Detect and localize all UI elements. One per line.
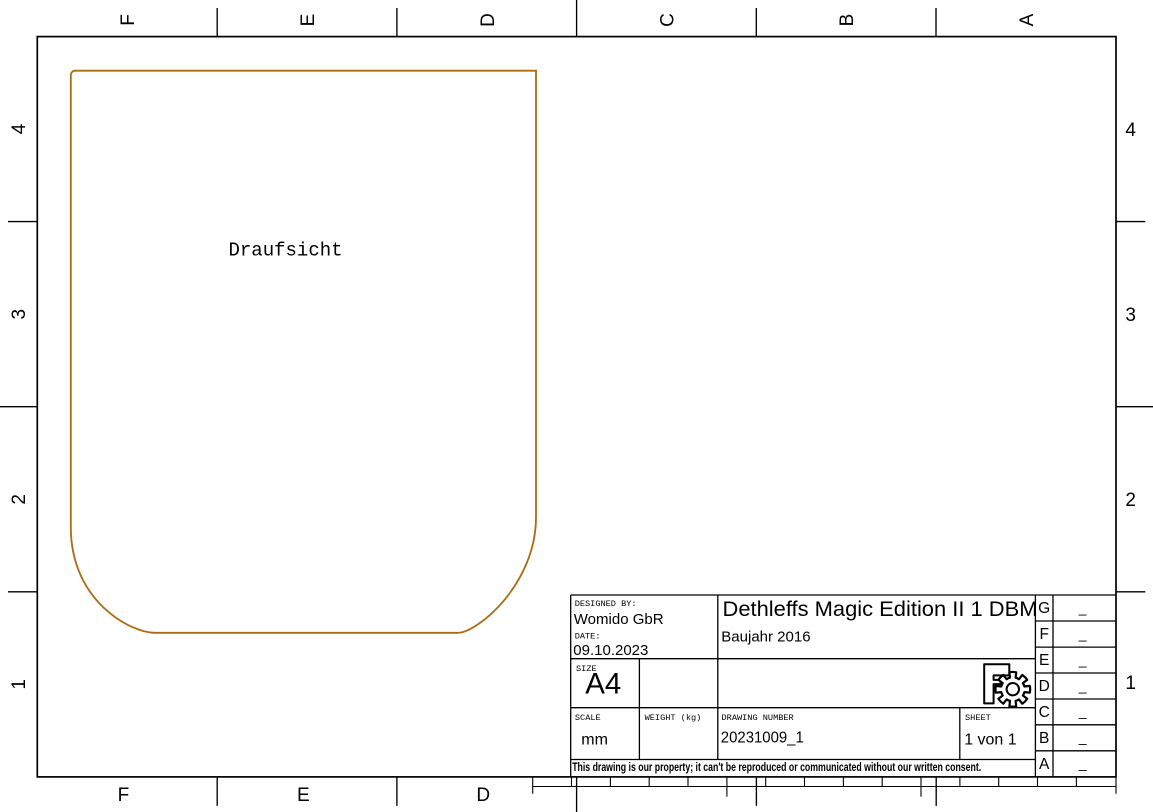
svg-text:_: _ [1078, 599, 1087, 615]
svg-text:B: B [837, 14, 858, 27]
svg-text:3: 3 [9, 309, 30, 320]
svg-text:D: D [476, 785, 490, 806]
svg-text:F: F [1039, 626, 1048, 643]
svg-text:3: 3 [1125, 305, 1136, 326]
svg-text:G: G [1038, 600, 1050, 617]
svg-text:1: 1 [1125, 673, 1136, 694]
svg-text:2: 2 [1125, 490, 1136, 511]
svg-text:SHEET: SHEET [965, 713, 991, 723]
svg-text:A: A [1039, 756, 1050, 773]
svg-text:DESIGNED BY:: DESIGNED BY: [575, 599, 637, 609]
svg-text:1 von 1: 1 von 1 [964, 732, 1017, 749]
svg-text:20231009_1: 20231009_1 [721, 730, 804, 747]
svg-text:SCALE: SCALE [575, 713, 601, 723]
svg-text:1: 1 [9, 679, 30, 690]
svg-text:2: 2 [9, 494, 30, 505]
svg-text:Draufsicht: Draufsicht [229, 240, 343, 262]
svg-text:This drawing is our property;: This drawing is our property; it can't b… [572, 760, 981, 774]
svg-text:D: D [478, 13, 499, 27]
svg-text:_: _ [1078, 703, 1087, 719]
svg-text:A4: A4 [585, 668, 621, 701]
svg-text:F: F [118, 785, 130, 806]
svg-text:09.10.2023: 09.10.2023 [573, 642, 648, 659]
svg-text:C: C [1039, 704, 1050, 721]
svg-text:mm: mm [581, 732, 608, 749]
svg-text:_: _ [1078, 729, 1087, 745]
svg-text:B: B [1039, 730, 1049, 747]
svg-text:Dethleffs Magic Edition II 1 D: Dethleffs Magic Edition II 1 DBM [723, 597, 1038, 621]
svg-text:4: 4 [1125, 120, 1136, 141]
svg-text:A: A [1017, 13, 1038, 26]
svg-text:E: E [297, 785, 310, 806]
svg-text:_: _ [1078, 677, 1087, 693]
svg-text:DRAWING NUMBER: DRAWING NUMBER [722, 713, 794, 723]
svg-text:D: D [1039, 678, 1050, 695]
svg-text:E: E [1039, 652, 1049, 669]
svg-text:Womido GbR: Womido GbR [574, 611, 664, 628]
svg-text:_: _ [1078, 625, 1087, 641]
svg-text:F: F [118, 14, 139, 26]
svg-text:DATE:: DATE: [575, 632, 601, 642]
svg-text:_: _ [1078, 755, 1087, 771]
svg-text:WEIGHT (kg): WEIGHT (kg) [645, 713, 702, 723]
svg-text:_: _ [1078, 651, 1087, 667]
svg-text:4: 4 [9, 123, 30, 134]
svg-text:C: C [658, 13, 679, 27]
svg-text:Baujahr 2016: Baujahr 2016 [721, 629, 810, 646]
svg-text:E: E [298, 14, 319, 27]
